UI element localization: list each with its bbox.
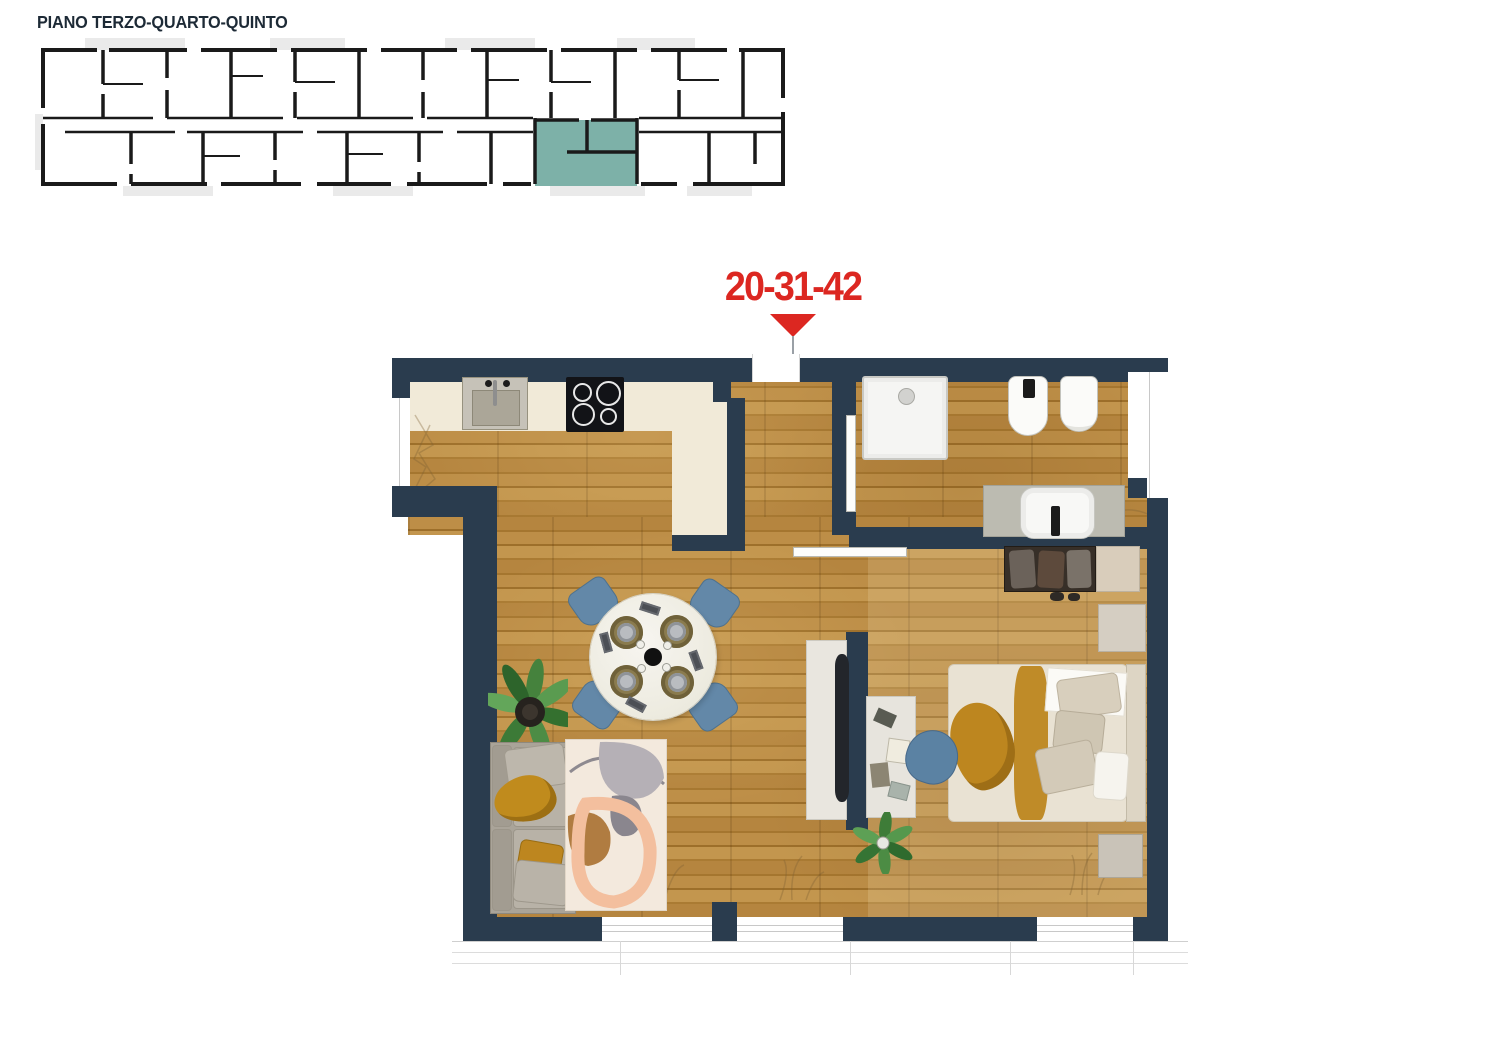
glass	[663, 641, 672, 650]
wall-left-corner-block	[392, 486, 497, 517]
shower	[862, 376, 948, 460]
washbasin-tap	[1051, 506, 1060, 536]
wall-top-right	[800, 358, 1168, 382]
wall-kitchen-right	[727, 398, 745, 550]
sink-knob	[503, 380, 510, 387]
glass	[637, 664, 646, 673]
apartment-plan	[0, 0, 1500, 1048]
bidet	[1008, 376, 1048, 436]
burner-icon	[600, 408, 617, 425]
balcony-divider	[620, 941, 621, 975]
burner-icon	[596, 381, 621, 406]
wardrobe-side-panel	[1096, 546, 1140, 592]
kitchen-window	[392, 398, 410, 486]
balcony-divider	[1010, 941, 1011, 975]
wall-partition-living-bedroom	[846, 632, 868, 830]
wall-window-step	[1128, 478, 1147, 498]
desk-card	[887, 781, 910, 801]
toilet	[1060, 376, 1098, 432]
rug	[566, 740, 666, 910]
wall-bottom-1	[463, 917, 602, 941]
bedroom-door-leaf	[793, 547, 907, 557]
balcony-strip	[452, 941, 1188, 976]
balcony-divider	[850, 941, 851, 975]
faucet-icon	[493, 380, 497, 406]
window-bottom-2	[737, 917, 843, 941]
window-bottom-3	[1037, 917, 1133, 941]
bathroom-door-leaf	[846, 415, 856, 512]
bed-pillow	[1092, 751, 1129, 801]
bed-runner-blanket	[1014, 666, 1048, 820]
shower-drain	[898, 388, 915, 405]
floor-plan-page: PIANO TERZO-QUARTO-QUINTO	[0, 0, 1500, 1048]
bidet-tap	[1023, 379, 1035, 398]
clothes	[1037, 550, 1065, 588]
burner-icon	[572, 403, 595, 426]
kitchen-sink	[462, 377, 528, 430]
shoes	[1050, 592, 1064, 601]
window-bottom-1	[602, 917, 712, 941]
wall-left-upper	[392, 358, 410, 398]
wall-bottom-pillar	[712, 902, 737, 941]
bed-headboard	[1126, 664, 1146, 822]
bed-bench	[1098, 834, 1143, 878]
induction-cooktop	[566, 377, 624, 432]
wardrobe	[1004, 546, 1096, 592]
sink-knob	[485, 380, 492, 387]
wall-bottom-2	[843, 917, 1037, 941]
clothes	[1009, 549, 1037, 589]
entrance-opening	[752, 354, 800, 382]
potted-plant	[852, 812, 914, 874]
shoes	[1068, 593, 1080, 601]
tv	[835, 654, 849, 802]
clothes	[1066, 550, 1091, 589]
desk-book	[870, 762, 890, 788]
balcony-divider	[1133, 941, 1134, 975]
table-centerpiece	[644, 648, 662, 666]
burner-icon	[573, 383, 592, 402]
desk-paper	[873, 708, 897, 729]
sofa-pillow	[512, 859, 572, 907]
glass	[662, 663, 671, 672]
nightstand	[1098, 604, 1146, 652]
glass	[636, 640, 645, 649]
sofa-back	[492, 829, 512, 911]
potted-plant	[488, 658, 568, 750]
wall-kitchen-bottom	[672, 535, 745, 551]
